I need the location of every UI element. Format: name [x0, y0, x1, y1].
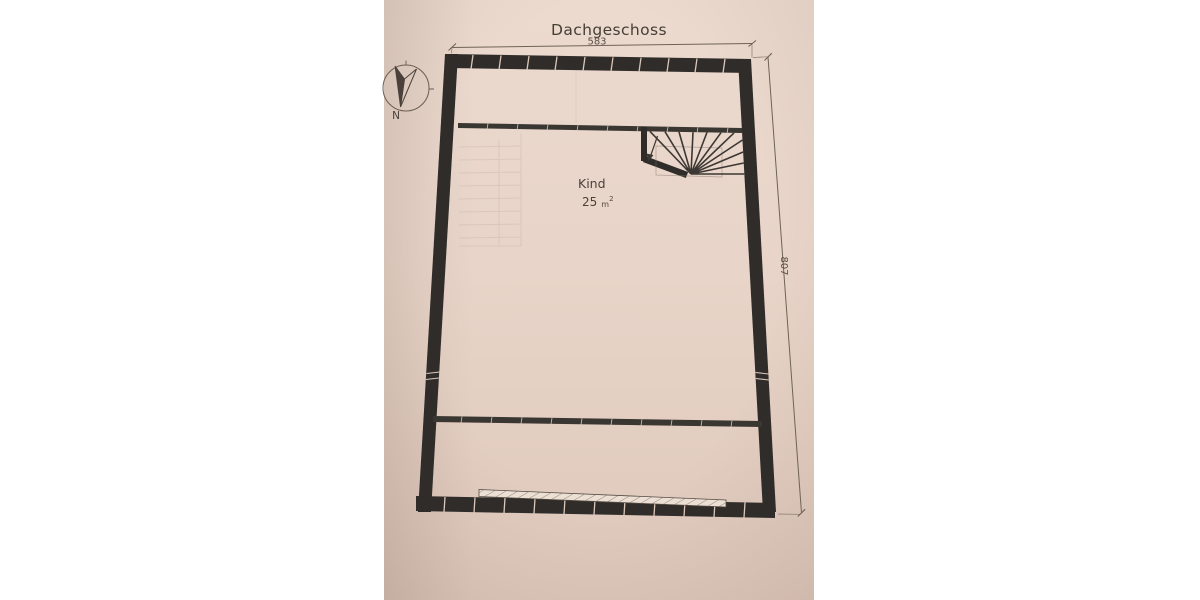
dimension-right-label: 807 — [778, 256, 789, 275]
dimension-top-label: 583 — [587, 37, 606, 48]
compass-north-label: N — [392, 110, 400, 122]
floorplan-drawing: N Dachgeschoss 583 807 Kind 25m2 — [0, 0, 1200, 600]
room-name-label: Kind — [578, 176, 606, 191]
page-title: Dachgeschoss — [551, 21, 667, 39]
floorplan-photo: N Dachgeschoss 583 807 Kind 25m2 — [0, 0, 1200, 600]
stair-enclosure-wall — [641, 127, 647, 162]
